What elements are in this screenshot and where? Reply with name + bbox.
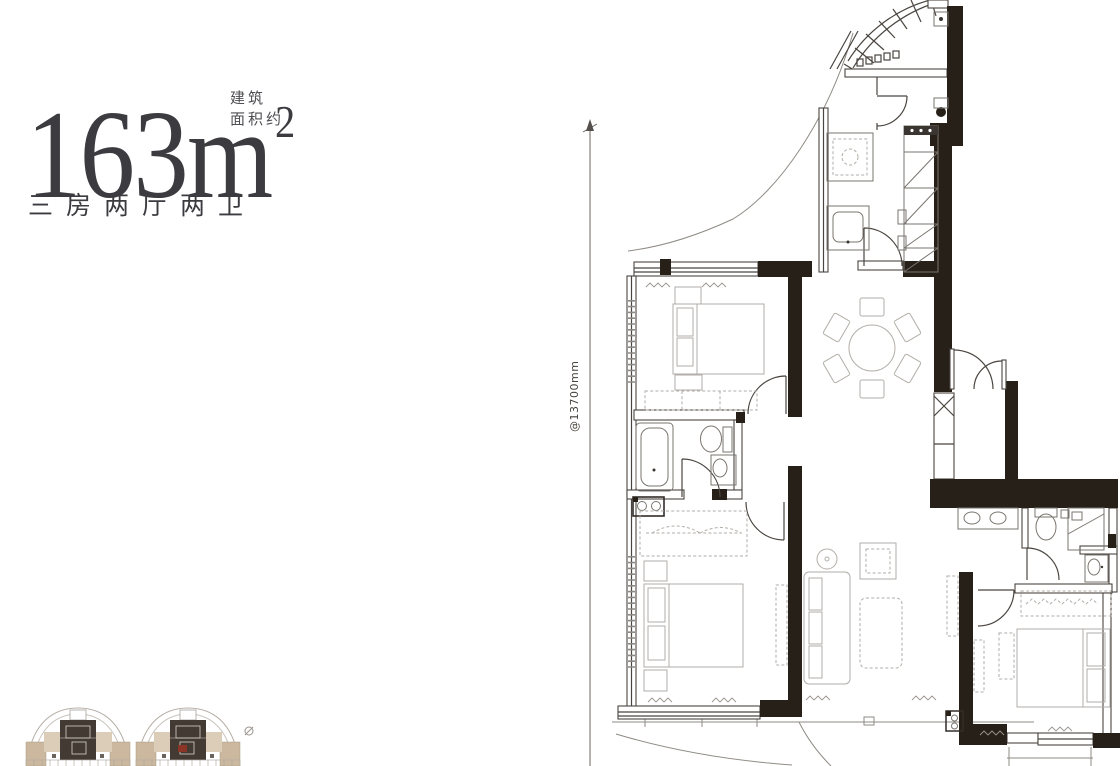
keyplan-right (136, 708, 240, 766)
bed-icon (1017, 629, 1110, 707)
dimension-label: @13700mm (568, 361, 581, 432)
sofa-icon (804, 572, 850, 684)
bedroom2-furniture (632, 283, 765, 410)
door-arcs (682, 96, 1059, 626)
washer-icon (827, 133, 873, 181)
bed-icon (673, 304, 764, 374)
tv-cabinet-icon (776, 585, 787, 665)
cabinet-column (904, 126, 938, 272)
kitchen-fixtures (827, 12, 948, 272)
keyplan-left (26, 708, 130, 766)
site-curves (612, 0, 1093, 766)
toilet-icon (701, 426, 722, 452)
master-bedroom-furniture (632, 511, 788, 702)
floor-lamp-icon (817, 549, 837, 569)
double-sink-icon (958, 508, 1018, 529)
shower-icon (1068, 508, 1104, 550)
floorplan-page: 163m2 建筑 面积约 三房两厅两卫 (0, 0, 1120, 766)
north-symbol-icon (245, 727, 253, 735)
dining-table-icon (823, 298, 922, 398)
toilet-icon (1035, 508, 1057, 517)
dimension-arrow-icon (586, 119, 594, 131)
structural-walls (660, 6, 1120, 748)
bathroom1-fixtures (633, 423, 736, 516)
vanity-icon (711, 455, 736, 485)
tv-icon (947, 576, 958, 636)
bedroom3-furniture (974, 591, 1111, 735)
unit-marker (178, 745, 187, 752)
bathroom2-fixtures (958, 508, 1108, 582)
dimension-line: @13700mm (568, 119, 597, 766)
floor-plan-drawing: @13700mm (0, 0, 1120, 766)
wardrobe-icon (1021, 591, 1111, 616)
coffee-table-icon (860, 598, 902, 668)
thin-walls (618, 0, 1117, 745)
living-room-furniture (804, 543, 963, 731)
tv-icon (974, 640, 984, 692)
